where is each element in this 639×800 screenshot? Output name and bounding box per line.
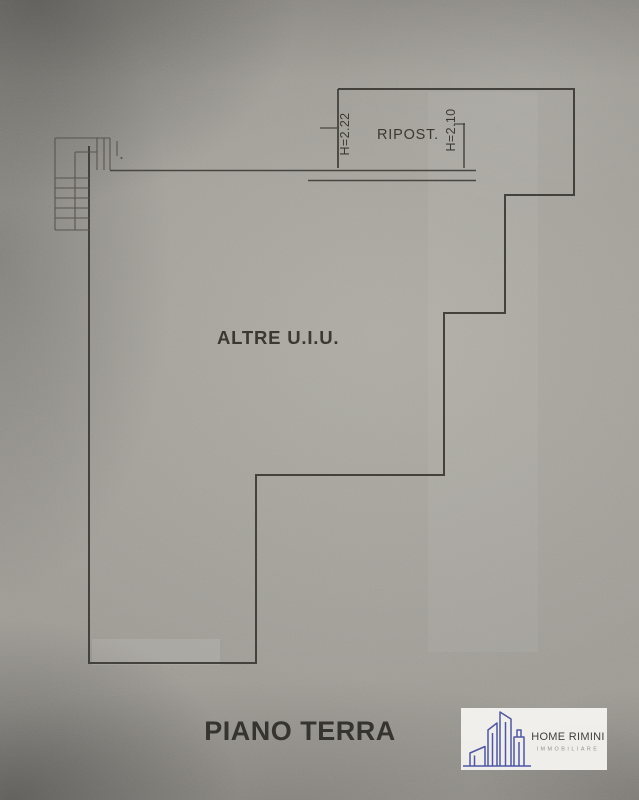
- scan-grain-overlay: [0, 0, 639, 800]
- scanned-floorplan-page: RIPOST. H=2.22 H=2.10 ALTRE U.I.U. PIANO…: [0, 0, 639, 800]
- floorplan-drawing: RIPOST. H=2.22 H=2.10 ALTRE U.I.U. PIANO…: [0, 0, 639, 800]
